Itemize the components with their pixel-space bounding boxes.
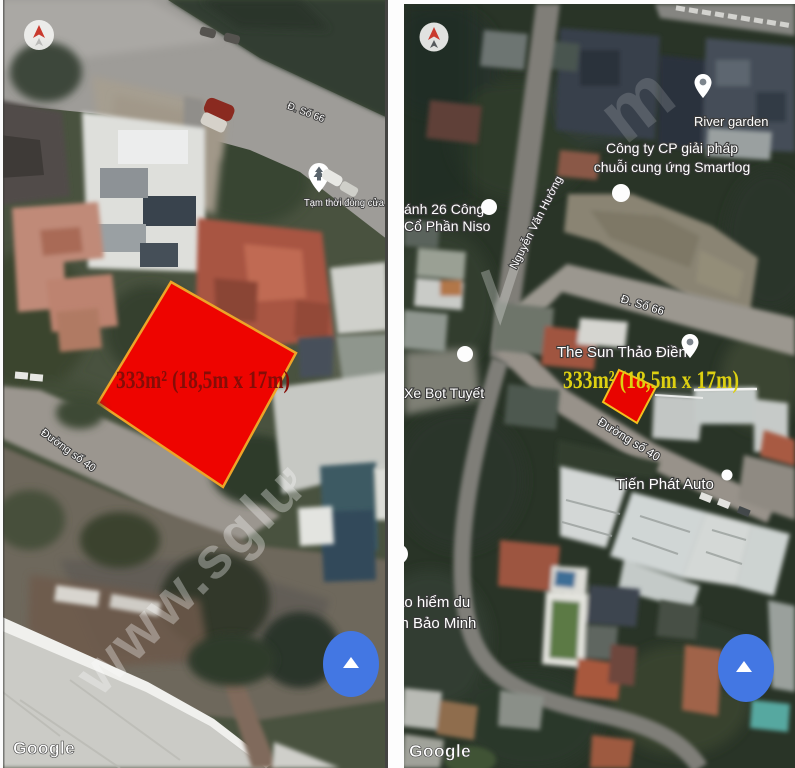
svg-text:Google: Google bbox=[409, 741, 471, 761]
svg-text:Xe Bọt Tuyết: Xe Bọt Tuyết bbox=[404, 385, 484, 401]
svg-text:333m² (18,5m x 17m): 333m² (18,5m x 17m) bbox=[116, 367, 290, 394]
svg-text:River garden: River garden bbox=[694, 114, 768, 129]
svg-text:Cổ Phần Niso: Cổ Phần Niso bbox=[404, 218, 491, 234]
svg-text:Tạm thời đóng cửa: Tạm thời đóng cửa bbox=[304, 197, 384, 209]
svg-text:ch Bảo Minh: ch Bảo Minh bbox=[393, 615, 476, 632]
svg-text:The Sun Thảo Điền: The Sun Thảo Điền bbox=[557, 344, 687, 361]
svg-text:333m² (18,5m x 17m): 333m² (18,5m x 17m) bbox=[563, 367, 739, 394]
svg-text:Google: Google bbox=[13, 738, 75, 758]
svg-text:Tiến Phát Auto: Tiến Phát Auto bbox=[616, 476, 714, 493]
svg-text:chuỗi cung ứng Smartlog: chuỗi cung ứng Smartlog bbox=[594, 159, 750, 175]
svg-text:Công ty CP giải pháp: Công ty CP giải pháp bbox=[606, 140, 738, 156]
svg-text:ảo hiểm du: ảo hiểm du bbox=[396, 594, 470, 611]
svg-text:ánh 26 Công: ánh 26 Công bbox=[404, 201, 484, 217]
